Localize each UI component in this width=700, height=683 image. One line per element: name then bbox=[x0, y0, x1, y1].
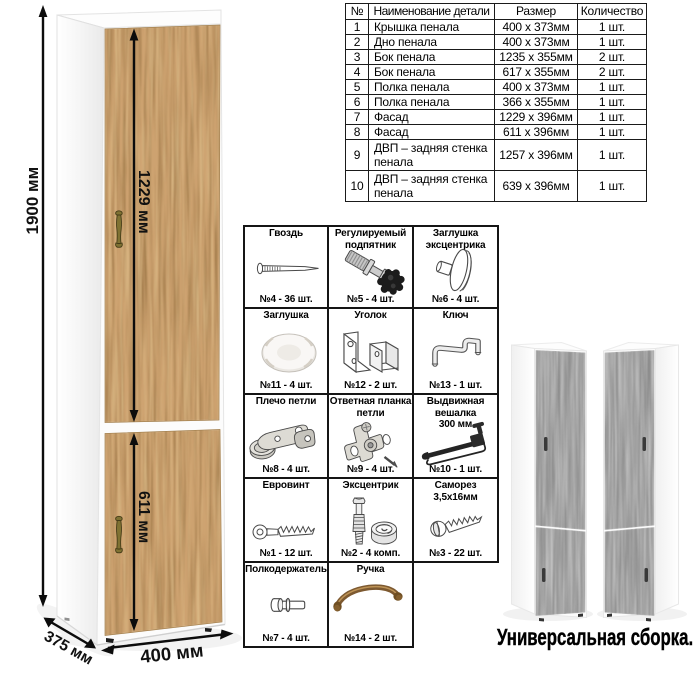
svg-text:611 мм: 611 мм bbox=[135, 491, 152, 543]
svg-text:1900 мм: 1900 мм bbox=[23, 167, 42, 235]
svg-text:1229 мм: 1229 мм bbox=[135, 170, 152, 234]
